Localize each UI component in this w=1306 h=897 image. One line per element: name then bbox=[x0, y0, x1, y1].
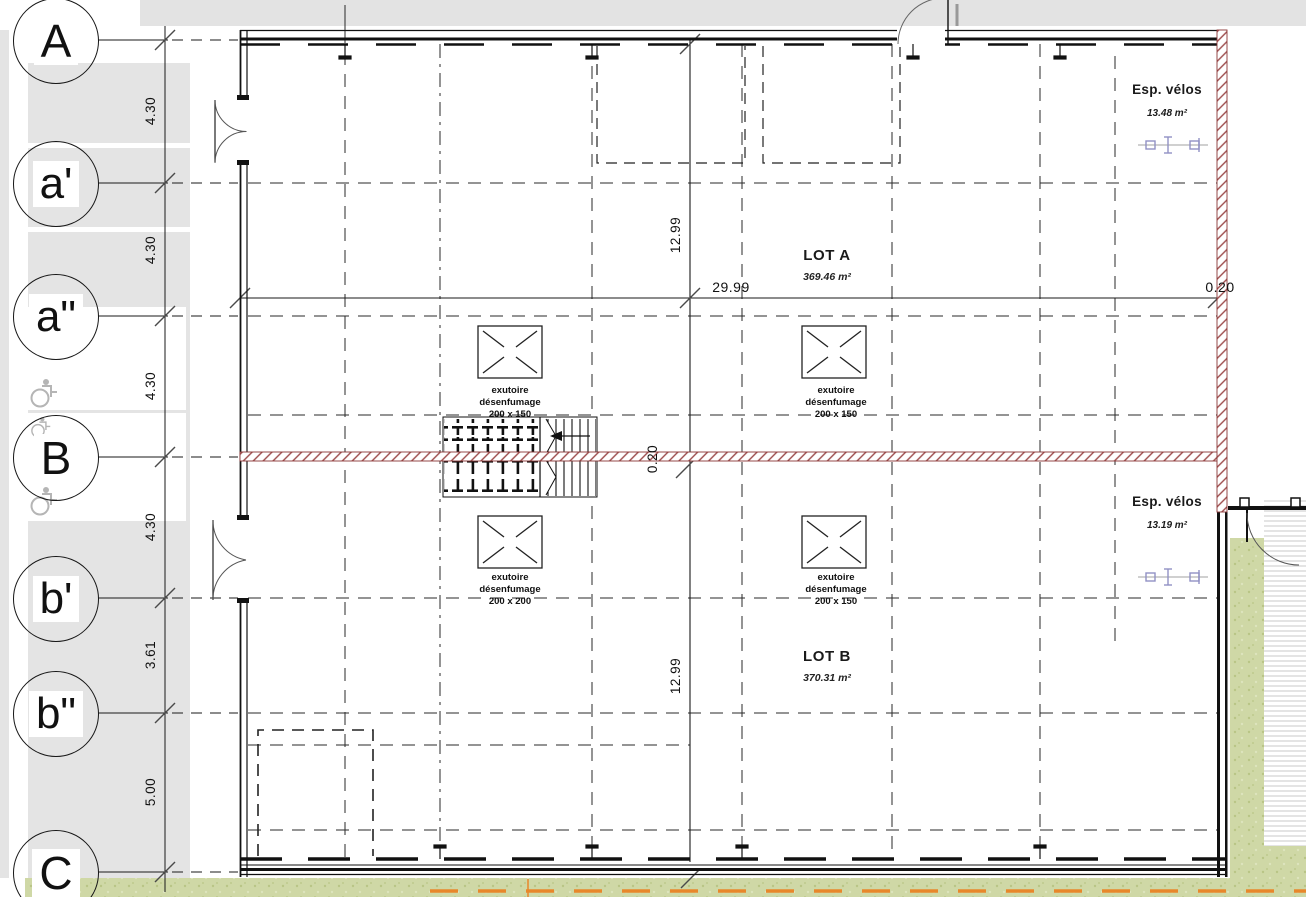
grid-axis-marker-B: B bbox=[13, 415, 99, 501]
grid-axis-label: b" bbox=[29, 691, 83, 737]
smoke-vent-label: exutoire désenfumage 200 x 200 bbox=[450, 572, 570, 608]
bike-rack-icons bbox=[1138, 137, 1208, 585]
lot-a-area: 369.46 m² bbox=[747, 271, 907, 283]
vent-size: 200 x 150 bbox=[776, 409, 896, 421]
axis-dimension: 4.30 bbox=[143, 79, 159, 143]
grid-axis-label: a" bbox=[29, 294, 83, 340]
vent-line2: désenfumage bbox=[450, 584, 570, 596]
vent-line1: exutoire bbox=[776, 572, 896, 584]
bike-rack-icon bbox=[1138, 137, 1208, 153]
vent-line2: désenfumage bbox=[776, 584, 896, 596]
vent-line1: exutoire bbox=[450, 385, 570, 397]
vent-line2: désenfumage bbox=[776, 397, 896, 409]
vent-line1: exutoire bbox=[450, 572, 570, 584]
axis-dimension: 5.00 bbox=[143, 760, 159, 824]
grid-axis-label: B bbox=[34, 434, 79, 482]
lot-a-name: LOT A bbox=[747, 247, 907, 264]
center-party-wall bbox=[240, 452, 1218, 461]
axis-leader-lines bbox=[98, 40, 238, 872]
smoke-vent-label: exutoire désenfumage 200 x 150 bbox=[776, 572, 896, 608]
bike-space-area: 13.48 m² bbox=[1107, 108, 1227, 119]
grid-axis-label: C bbox=[32, 849, 79, 897]
dimension-east-wall: 0.20 bbox=[1190, 279, 1250, 295]
grid-lines bbox=[248, 5, 1217, 858]
grid-axis-label: b' bbox=[33, 576, 80, 622]
bike-rack-icon bbox=[1138, 569, 1208, 585]
east-grass-strip bbox=[1230, 538, 1264, 878]
grid-axis-label: A bbox=[34, 17, 79, 65]
grid-axis-label: a' bbox=[33, 161, 80, 207]
smoke-vent-square-icon bbox=[478, 326, 542, 378]
south-grass-strip bbox=[25, 878, 1306, 897]
dimension-center-wall: 0.20 bbox=[645, 427, 661, 491]
walls bbox=[213, 0, 1306, 877]
smoke-vent-square-icon bbox=[478, 516, 542, 568]
west-double-door bbox=[215, 95, 249, 165]
dimension-lot-a-depth: 12.99 bbox=[668, 203, 684, 267]
vent-size: 200 x 200 bbox=[450, 596, 570, 608]
smoke-vent-label: exutoire désenfumage 200 x 150 bbox=[776, 385, 896, 421]
axis-dimension: 3.61 bbox=[143, 623, 159, 687]
smoke-vent-square-icon bbox=[802, 326, 866, 378]
wheelchair-icon bbox=[32, 379, 58, 407]
axis-dimension: 4.30 bbox=[143, 495, 159, 559]
axis-dimension: 4.30 bbox=[143, 218, 159, 282]
vent-size: 200 x 150 bbox=[776, 596, 896, 608]
west-double-door bbox=[213, 515, 249, 603]
grid-axis-marker-A: A bbox=[13, 0, 99, 84]
north-door-opening bbox=[897, 27, 945, 47]
vent-size: 200 x 150 bbox=[450, 409, 570, 421]
grid-axis-marker-a2: a" bbox=[13, 274, 99, 360]
top-sidewalk-band bbox=[140, 0, 1306, 26]
lot-b-area: 370.31 m² bbox=[747, 672, 907, 684]
axis-dimension: 4.30 bbox=[143, 354, 159, 418]
bike-space-label: Esp. vélos bbox=[1107, 494, 1227, 509]
grid-axis-marker-b1: b' bbox=[13, 556, 99, 642]
smoke-vent-label: exutoire désenfumage 200 x 150 bbox=[450, 385, 570, 421]
vent-line1: exutoire bbox=[776, 385, 896, 397]
vent-line2: désenfumage bbox=[450, 397, 570, 409]
bike-space-area: 13.19 m² bbox=[1107, 520, 1227, 531]
smoke-vent-square-icon bbox=[802, 516, 866, 568]
east-decking bbox=[1264, 500, 1306, 846]
dimension-lot-b-depth: 12.99 bbox=[668, 644, 684, 708]
east-fire-wall bbox=[1217, 30, 1227, 512]
bike-space-label: Esp. vélos bbox=[1107, 82, 1227, 97]
landscape bbox=[25, 0, 1306, 897]
grid-axis-marker-b2: b" bbox=[13, 671, 99, 757]
grid-axis-marker-a1: a' bbox=[13, 141, 99, 227]
lot-b-name: LOT B bbox=[747, 648, 907, 665]
floor-plan-canvas: A a' a" B b' b" C 4.30 4.30 4.30 4.30 3.… bbox=[0, 0, 1306, 897]
